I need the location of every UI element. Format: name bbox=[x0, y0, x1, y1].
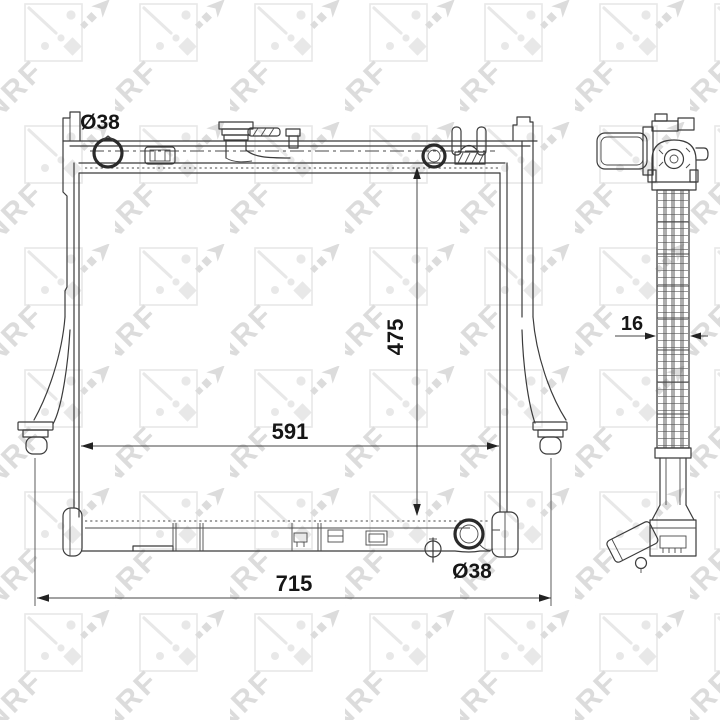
core-width-label: 591 bbox=[272, 419, 309, 444]
core-thickness-label: 16 bbox=[621, 313, 643, 335]
radiator-technical-drawing: NRF bbox=[0, 0, 720, 720]
dim-outlet-diameter-bottom: Ø38 bbox=[452, 560, 492, 583]
technical-drawing-page: NRF bbox=[0, 0, 720, 720]
nrf-watermark-pattern bbox=[0, 0, 720, 720]
inlet-diameter-label: Ø38 bbox=[80, 111, 120, 134]
overall-width-label: 715 bbox=[276, 571, 313, 596]
outlet-diameter-label: Ø38 bbox=[452, 560, 492, 583]
core-height-label: 475 bbox=[383, 319, 408, 356]
side-core bbox=[657, 190, 689, 448]
dim-inlet-diameter-top: Ø38 bbox=[80, 111, 120, 134]
